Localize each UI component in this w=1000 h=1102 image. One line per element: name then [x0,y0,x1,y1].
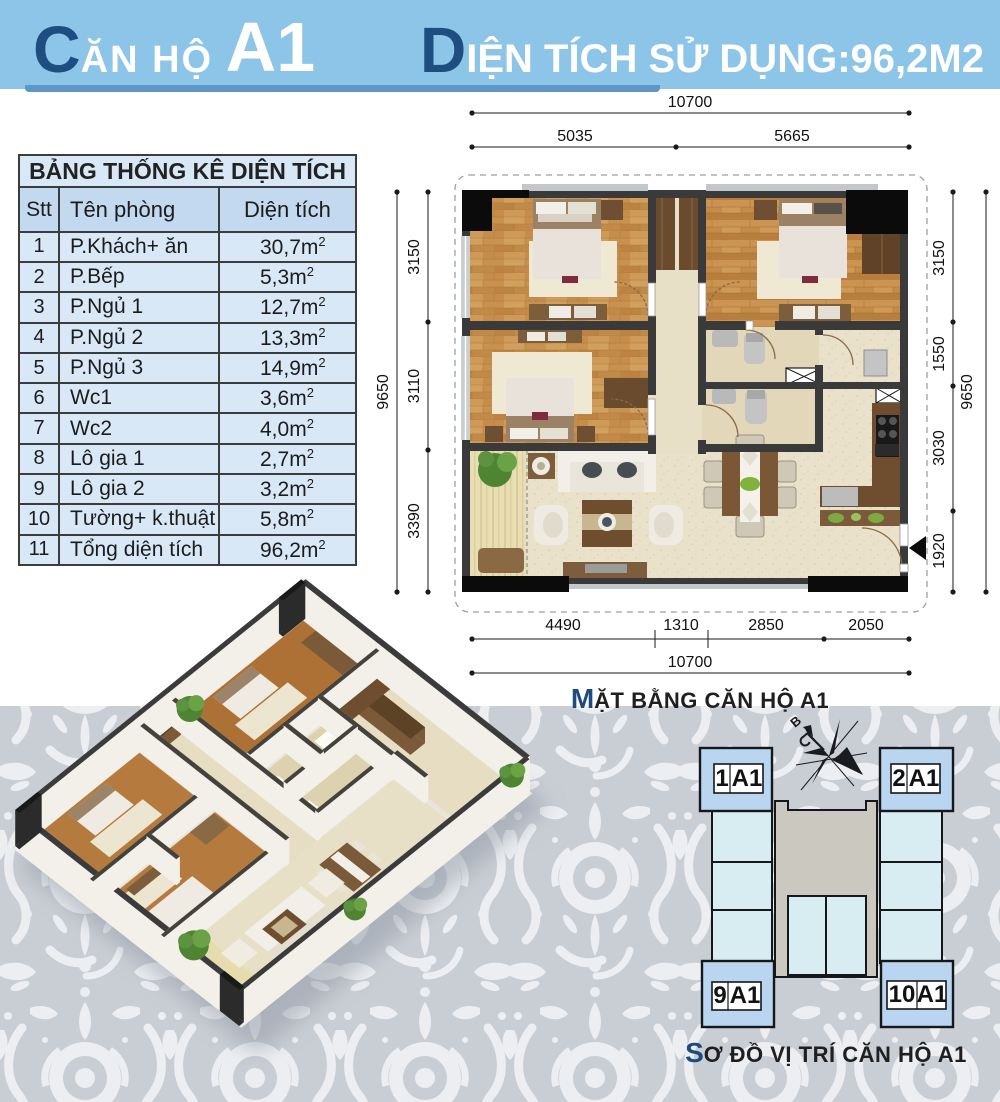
svg-text:1550: 1550 [931,336,948,372]
svg-text:2: 2 [892,765,905,792]
svg-text:3150: 3150 [931,240,948,276]
svg-text:4490: 4490 [545,617,581,634]
svg-text:3110: 3110 [406,369,423,404]
svg-text:9650: 9650 [959,374,976,410]
svg-text:3390: 3390 [406,503,423,539]
svg-text:A1: A1 [732,765,763,792]
svg-text:10700: 10700 [668,94,713,111]
svg-text:10700: 10700 [668,654,713,671]
svg-text:A1: A1 [730,982,761,1009]
svg-text:2050: 2050 [848,617,884,634]
svg-text:9: 9 [713,982,726,1009]
svg-text:A1: A1 [909,765,940,792]
svg-text:1920: 1920 [931,533,948,569]
svg-text:A1: A1 [917,981,948,1008]
svg-text:3150: 3150 [406,239,423,275]
svg-text:10: 10 [889,981,916,1008]
svg-text:5665: 5665 [774,128,810,145]
svg-text:1310: 1310 [663,617,699,634]
svg-text:3030: 3030 [931,430,948,466]
svg-text:9650: 9650 [375,374,392,410]
svg-text:2850: 2850 [748,617,784,634]
svg-text:5035: 5035 [557,128,593,145]
svg-text:1: 1 [715,765,728,792]
